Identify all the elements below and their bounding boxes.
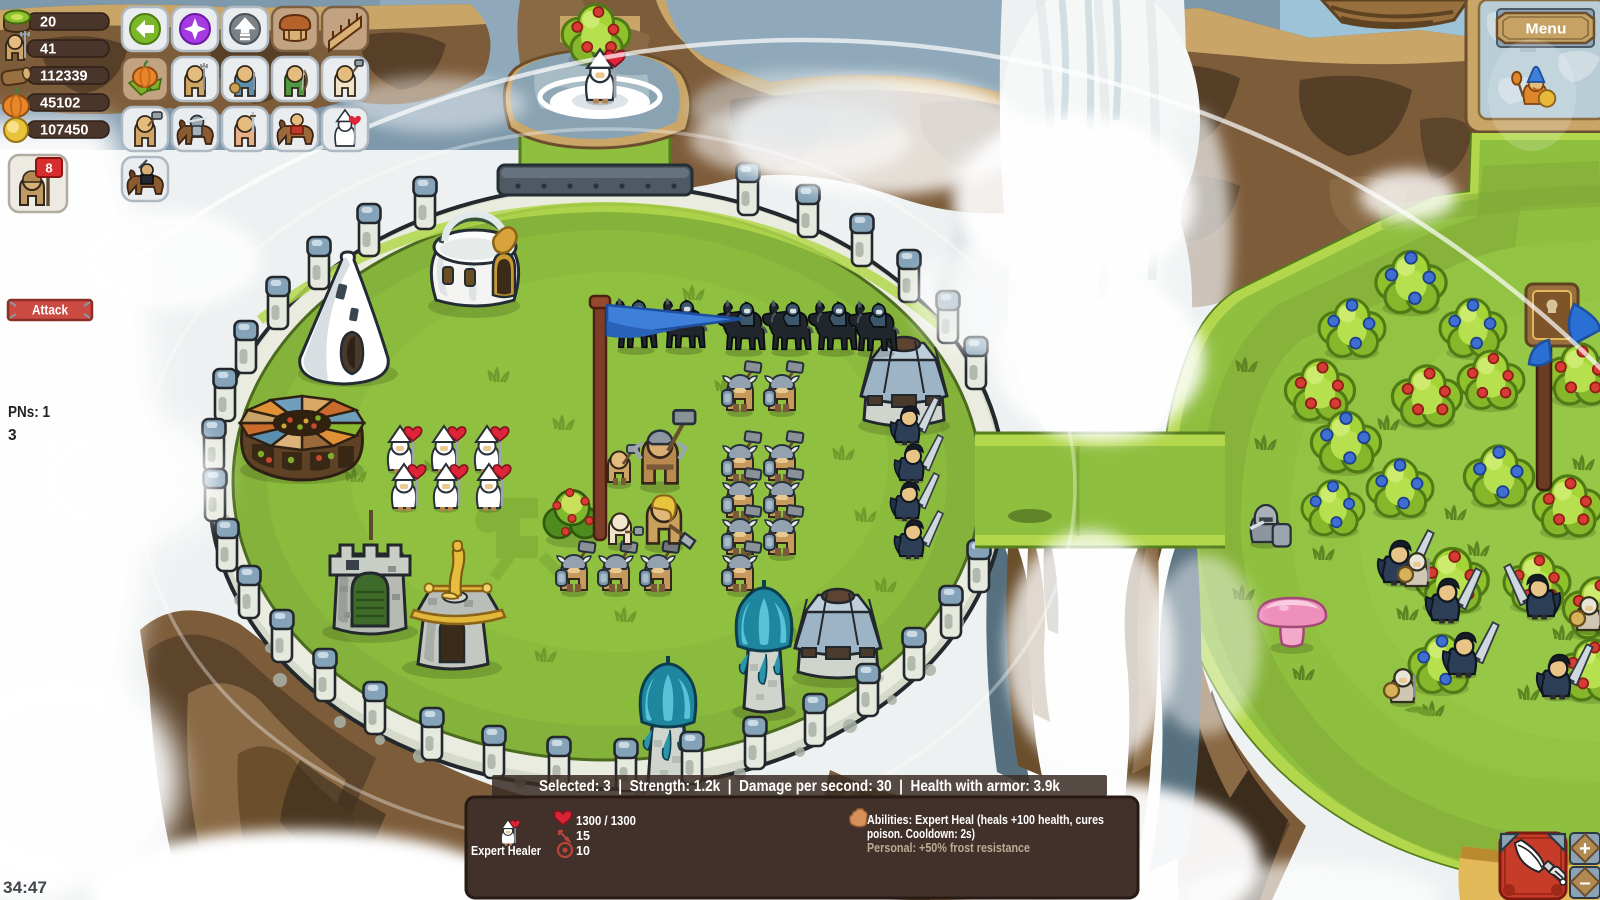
svg-text:poison. Cooldown: 2s): poison. Cooldown: 2s): [867, 827, 975, 841]
svg-text:–: –: [1579, 872, 1590, 894]
svg-text:34:47: 34:47: [3, 879, 47, 897]
svg-text:3: 3: [8, 427, 17, 444]
svg-text:Abilities: Expert Heal (heals: Abilities: Expert Heal (heals +100 healt…: [867, 813, 1104, 827]
svg-text:41: 41: [40, 42, 56, 58]
svg-text:Attack: Attack: [32, 303, 68, 318]
svg-text:Menu: Menu: [1526, 21, 1567, 38]
svg-text:Expert Healer: Expert Healer: [471, 844, 541, 858]
svg-text:+: +: [1579, 838, 1591, 860]
svg-text:15: 15: [576, 829, 590, 843]
svg-text:112339: 112339: [40, 69, 88, 85]
svg-text:Selected: 3 | Strength: 1.2k: Selected: 3 | Strength: 1.2k | Damage pe…: [539, 778, 1060, 795]
svg-text:8: 8: [45, 161, 52, 176]
svg-text:PNs: 1: PNs: 1: [8, 404, 50, 421]
svg-text:20: 20: [40, 15, 56, 31]
svg-text:45102: 45102: [40, 96, 80, 112]
svg-text:107450: 107450: [40, 123, 88, 139]
svg-text:10: 10: [576, 844, 590, 858]
svg-text:1300 / 1300: 1300 / 1300: [576, 814, 636, 828]
svg-text:Personal: +50% frost resistanc: Personal: +50% frost resistance: [867, 841, 1030, 855]
